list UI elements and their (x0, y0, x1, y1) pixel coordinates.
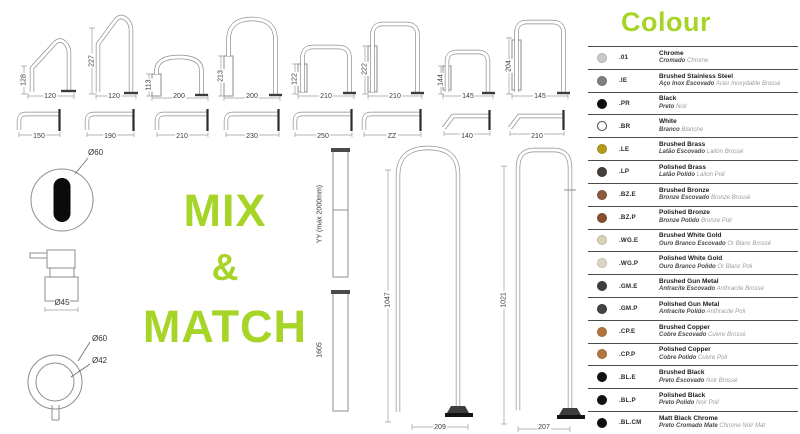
colour-code: .PR (619, 100, 659, 107)
colour-code: .BL.CM (619, 419, 659, 426)
colour-text: Brushed Stainless Steel Aço Inox Escovad… (659, 73, 798, 89)
colour-translation: Ouro Branco Escovado Or Blanc Brossé (659, 241, 798, 249)
colour-swatch (597, 53, 607, 63)
colour-name-pt: Bronze Polido (659, 218, 699, 224)
colour-code: .WG.E (619, 237, 659, 244)
wall-spout-diagram-6: ZZ (357, 106, 427, 140)
colour-name-pt: Preto (659, 104, 674, 110)
width-dim-label: 209 (433, 424, 447, 431)
length-dim-label: 210 (530, 133, 544, 140)
spout-diagram-5: 122 210 (292, 38, 360, 100)
colour-code: .LP (619, 168, 659, 175)
headline-line-1: MIX (134, 188, 316, 233)
spout-diagram-8: 204 145 (506, 14, 574, 100)
colour-text: Polished Copper Cobre Polido Cuivre Poli (659, 346, 798, 362)
colour-name: Polished Gun Metal (659, 301, 798, 309)
colour-swatch (597, 121, 607, 131)
colour-name: Chrome (659, 50, 798, 58)
outer-diameter-label: Ø60 (92, 335, 107, 343)
colour-row-bze: .BZ.E Brushed Bronze Bronze Escovado Bro… (588, 183, 798, 206)
spout-outline (506, 14, 574, 100)
floor-spout-diagram-1: 1047 209 (380, 140, 476, 434)
colour-name-pt: Antracite Polido (659, 309, 705, 315)
spout-diagram-6: 222 210 (362, 16, 428, 100)
width-dim-label: 200 (172, 93, 186, 100)
colour-swatch (597, 304, 607, 314)
colour-code: .IE (619, 77, 659, 84)
spout-outline (292, 38, 360, 100)
colour-swatch (597, 144, 607, 154)
height-dim-label: 222 (362, 62, 369, 76)
colour-name-pt: Aço Inox Escovado (659, 81, 714, 87)
colour-translation: Cromado Chrome (659, 58, 798, 66)
colour-name-fr: Blanche (681, 127, 703, 133)
colour-row-cpe: .CP.E Brushed Copper Cobre Escovado Cuiv… (588, 320, 798, 343)
spout-outline (496, 142, 588, 434)
colour-text: Matt Black Chrome Preto Cromado Mate Chr… (659, 415, 798, 431)
colour-swatch (597, 418, 607, 428)
colour-code: .LE (619, 146, 659, 153)
knob-outline (22, 330, 126, 434)
width-dim-label: 207 (537, 424, 551, 431)
colour-text: Brushed Gun Metal Antracite Escovado Ant… (659, 278, 798, 294)
colour-translation: Bronze Escovado Bronze Brossé (659, 195, 798, 203)
width-dim-label: 145 (533, 93, 547, 100)
colour-name: Brushed Gun Metal (659, 278, 798, 286)
colour-translation: Branco Blanche (659, 127, 798, 135)
colour-row-lp: .LP Polished Brass Latão Polido Laiton P… (588, 160, 798, 183)
wall-spout-diagram-4: 230 (219, 106, 285, 140)
colour-name: Brushed Copper (659, 324, 798, 332)
wall-spout-diagram-7: 140 (438, 106, 496, 140)
colour-text: Brushed Black Preto Escovado Noir Brossé (659, 369, 798, 385)
colour-swatch (597, 76, 607, 86)
colour-row-wge: .WG.E Brushed White Gold Ouro Branco Esc… (588, 229, 798, 252)
colour-swatch (597, 349, 607, 359)
colour-code: .GM.P (619, 305, 659, 312)
colour-row-bzp: .BZ.P Polished Bronze Bronze Polido Bron… (588, 206, 798, 229)
colour-code: .01 (619, 54, 659, 61)
colour-code: .BL.E (619, 374, 659, 381)
colour-swatch (597, 281, 607, 291)
wall-spout-diagram-1: 150 (12, 106, 66, 140)
riser-column-diagram-2: 1605 (306, 288, 358, 418)
colour-swatch (597, 395, 607, 405)
colour-legend-rows: .01 Chrome Cromado Chrome .IE Brushed St… (588, 46, 798, 434)
riser-length-label: YY (max 2000mm) (317, 184, 324, 244)
length-dim-label: 230 (245, 133, 259, 140)
wall-spout-diagram-8: 210 (504, 106, 570, 140)
colour-name-fr: Laiton Poli (697, 172, 725, 178)
colour-text: Polished Brass Latão Polido Laiton Poli (659, 164, 798, 180)
width-dim-label: 145 (461, 93, 475, 100)
colour-translation: Latão Polido Laiton Poli (659, 172, 798, 180)
colour-swatch (597, 167, 607, 177)
colour-row-ble: .BL.E Brushed Black Preto Escovado Noir … (588, 365, 798, 388)
colour-name-fr: Noir Poli (696, 400, 719, 406)
spout-diagram-4: 213 200 (218, 12, 286, 100)
length-dim-label: 150 (32, 133, 46, 140)
colour-name-pt: Latão Escovado (659, 149, 705, 155)
mix-and-match-headline: MIX & MATCH (134, 188, 316, 349)
colour-name-fr: Or Blanc Brossé (727, 241, 771, 247)
width-dim-label: 200 (245, 93, 259, 100)
colour-code: .GM.E (619, 283, 659, 290)
colour-name-fr: Cuivre Brossé (708, 332, 746, 338)
colour-name-fr: Cuivre Poli (698, 355, 727, 361)
colour-translation: Preto Escovado Noir Brossé (659, 378, 798, 386)
width-dim-label: 210 (319, 93, 333, 100)
colour-text: Polished Gun Metal Antracite Polido Anth… (659, 301, 798, 317)
colour-name: Polished Black (659, 392, 798, 400)
colour-text: White Branco Blanche (659, 118, 798, 134)
colour-name: Brushed White Gold (659, 232, 798, 240)
diameter-label: Ø60 (88, 149, 103, 157)
colour-name-pt: Cobre Polido (659, 355, 696, 361)
colour-name-fr: Anthracite Brossé (716, 286, 763, 292)
colour-translation: Preto Polido Noir Poli (659, 400, 798, 408)
colour-row-gme: .GM.E Brushed Gun Metal Antracite Escova… (588, 274, 798, 297)
mixer-outline (22, 246, 114, 318)
colour-name-pt: Cromado (659, 58, 685, 64)
colour-text: Polished Bronze Bronze Polido Bronze Pol… (659, 209, 798, 225)
colour-name: Brushed Black (659, 369, 798, 377)
colour-name: Black (659, 95, 798, 103)
colour-text: Black Preto Noir (659, 95, 798, 111)
colour-name-pt: Ouro Branco Escovado (659, 241, 726, 247)
length-dim-label: 190 (103, 133, 117, 140)
colour-name-fr: Chrome (687, 58, 708, 64)
colour-name-fr: Bronze Brossé (711, 195, 750, 201)
colour-row-gmp: .GM.P Polished Gun Metal Antracite Polid… (588, 297, 798, 320)
colour-translation: Latão Escovado Laiton Brossé (659, 149, 798, 157)
colour-name: White (659, 118, 798, 126)
height-dim-label: 227 (89, 54, 96, 68)
colour-name: Brushed Bronze (659, 187, 798, 195)
colour-text: Brushed White Gold Ouro Branco Escovado … (659, 232, 798, 248)
colour-name-pt: Branco (659, 127, 680, 133)
riser-outline (306, 288, 358, 418)
wall-spout-diagram-5: 250 (288, 106, 358, 140)
colour-text: Brushed Copper Cobre Escovado Cuivre Bro… (659, 324, 798, 340)
length-dim-label: 250 (316, 133, 330, 140)
colour-name-fr: Laiton Brossé (707, 149, 744, 155)
colour-text: Chrome Cromado Chrome (659, 50, 798, 66)
height-dim-label: 204 (506, 59, 513, 73)
riser-column-diagram-1: YY (max 2000mm) (306, 146, 358, 282)
height-dim-label: 113 (146, 78, 153, 91)
colour-translation: Bronze Polido Bronze Poli (659, 218, 798, 226)
colour-row-br: .BR White Branco Blanche (588, 114, 798, 137)
mixer-side-view-diagram: Ø45 (22, 246, 114, 318)
colour-text: Polished Black Preto Polido Noir Poli (659, 392, 798, 408)
spout-outline (438, 40, 498, 100)
colour-code: .BZ.E (619, 191, 659, 198)
width-dim-label: 120 (107, 93, 121, 100)
riser-outline (306, 146, 358, 282)
colour-row-pr: .PR Black Preto Noir (588, 92, 798, 115)
colour-name-fr: Chrome Noir Mat (719, 423, 765, 429)
spout-diagram-3: 113 200 (146, 52, 212, 100)
colour-text: Polished White Gold Ouro Branco Polido O… (659, 255, 798, 271)
knob-outline (20, 146, 124, 246)
colour-swatch (597, 213, 607, 223)
product-spec-sheet: 128 120 227 120 113 200 213 (0, 0, 800, 434)
colour-swatch (597, 99, 607, 109)
width-dim-label: 120 (43, 93, 57, 100)
spout-outline (380, 140, 476, 434)
riser-length-label: 1605 (317, 341, 324, 359)
height-dim-label: 122 (292, 72, 299, 86)
spout-outline (362, 16, 428, 100)
colour-code: .BR (619, 123, 659, 130)
headline-ampersand: & (134, 249, 316, 286)
colour-row-01: .01 Chrome Cromado Chrome (588, 46, 798, 69)
colour-name: Polished White Gold (659, 255, 798, 263)
colour-name-pt: Antracite Escovado (659, 286, 715, 292)
wall-spout-diagram-3: 210 (150, 106, 214, 140)
colour-name-fr: Anthracite Poli (706, 309, 745, 315)
colour-name-fr: Or Blanc Poli (717, 264, 752, 270)
colour-row-blcm: .BL.CM Matt Black Chrome Preto Cromado M… (588, 411, 798, 434)
colour-translation: Cobre Escovado Cuivre Brossé (659, 332, 798, 340)
colour-name: Polished Bronze (659, 209, 798, 217)
colour-name: Brushed Brass (659, 141, 798, 149)
colour-translation: Ouro Branco Polido Or Blanc Poli (659, 264, 798, 272)
colour-text: Brushed Bronze Bronze Escovado Bronze Br… (659, 187, 798, 203)
colour-row-ie: .IE Brushed Stainless Steel Aço Inox Esc… (588, 69, 798, 92)
spout-diagram-2: 227 120 (84, 8, 144, 100)
knob-ring-top-view-diagram: Ø60 Ø42 (22, 330, 126, 434)
colour-code: .BL.P (619, 397, 659, 404)
colour-name-pt: Preto Escovado (659, 378, 704, 384)
height-dim-label: 144 (438, 73, 445, 87)
colour-row-cpp: .CP.P Polished Copper Cobre Polido Cuivr… (588, 343, 798, 366)
colour-name: Brushed Stainless Steel (659, 73, 798, 81)
colour-code: .CP.P (619, 351, 659, 358)
height-dim-label: 213 (218, 69, 225, 83)
spout-outline (14, 28, 86, 100)
colour-legend: Colour .01 Chrome Cromado Chrome .IE Bru… (588, 0, 800, 434)
colour-text: Brushed Brass Latão Escovado Laiton Bros… (659, 141, 798, 157)
colour-code: .BZ.P (619, 214, 659, 221)
colour-row-blp: .BL.P Polished Black Preto Polido Noir P… (588, 388, 798, 411)
colour-translation: Cobre Polido Cuivre Poli (659, 355, 798, 363)
length-dim-label: 140 (460, 133, 474, 140)
width-dim-label: 210 (388, 93, 402, 100)
colour-name-fr: Acier Inoxydable Brossé (716, 81, 781, 87)
colour-swatch (597, 190, 607, 200)
colour-translation: Preto Cromado Mate Chrome Noir Mat (659, 423, 798, 431)
colour-name-fr: Noir Brossé (706, 378, 737, 384)
wall-spout-diagram-2: 190 (80, 106, 140, 140)
colour-name-fr: Noir (676, 104, 687, 110)
floor-spout-diagram-2: 1021 207 (496, 142, 588, 434)
colour-translation: Preto Noir (659, 104, 798, 112)
colour-name-pt: Preto Cromado Mate (659, 423, 718, 429)
knob-top-view-diagram: Ø60 (20, 146, 124, 246)
diameter-label: Ø45 (54, 299, 69, 307)
height-dim-label: 1047 (385, 291, 392, 309)
spout-diagram-1: 128 120 (14, 28, 86, 100)
colour-swatch (597, 258, 607, 268)
colour-name-pt: Bronze Escovado (659, 195, 709, 201)
colour-name-pt: Preto Polido (659, 400, 694, 406)
spout-diagram-7: 144 145 (438, 40, 498, 100)
colour-name: Matt Black Chrome (659, 415, 798, 423)
colour-swatch (597, 235, 607, 245)
colour-swatch (597, 372, 607, 382)
colour-code: .WG.P (619, 260, 659, 267)
inner-diameter-label: Ø42 (92, 357, 107, 365)
headline-line-3: MATCH (134, 304, 316, 349)
colour-swatch (597, 327, 607, 337)
spout-outline (218, 12, 286, 100)
colour-translation: Antracite Polido Anthracite Poli (659, 309, 798, 317)
colour-translation: Antracite Escovado Anthracite Brossé (659, 286, 798, 294)
colour-translation: Aço Inox Escovado Acier Inoxydable Bross… (659, 81, 798, 89)
colour-name-pt: Ouro Branco Polido (659, 264, 716, 270)
colour-code: .CP.E (619, 328, 659, 335)
colour-row-wgp: .WG.P Polished White Gold Ouro Branco Po… (588, 251, 798, 274)
length-dim-label: 210 (175, 133, 189, 140)
colour-row-le: .LE Brushed Brass Latão Escovado Laiton … (588, 137, 798, 160)
height-dim-label: 1021 (501, 291, 508, 309)
length-dim-label: ZZ (387, 133, 398, 140)
colour-legend-title: Colour (621, 4, 800, 42)
colour-name-pt: Cobre Escovado (659, 332, 706, 338)
colour-name: Polished Copper (659, 346, 798, 354)
colour-name-pt: Latão Polido (659, 172, 695, 178)
height-dim-label: 128 (21, 73, 28, 87)
colour-name: Polished Brass (659, 164, 798, 172)
colour-name-fr: Bronze Poli (701, 218, 732, 224)
